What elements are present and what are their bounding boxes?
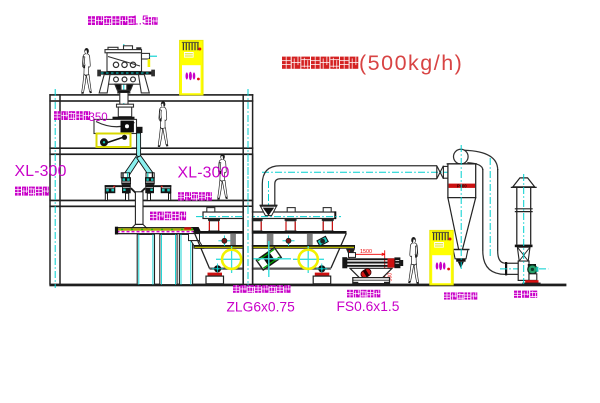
svg-text:1500: 1500 xyxy=(360,249,372,255)
svg-text:ZLG6x0.75: ZLG6x0.75 xyxy=(227,300,296,315)
svg-text:XL-300: XL-300 xyxy=(15,163,67,180)
svg-text:XL-300: XL-300 xyxy=(178,165,230,182)
svg-text:P600: P600 xyxy=(457,183,467,188)
svg-text:(500kg/h): (500kg/h) xyxy=(359,51,463,75)
svg-text:FS0.6x1.5: FS0.6x1.5 xyxy=(337,299,400,314)
svg-text:350: 350 xyxy=(89,112,108,124)
